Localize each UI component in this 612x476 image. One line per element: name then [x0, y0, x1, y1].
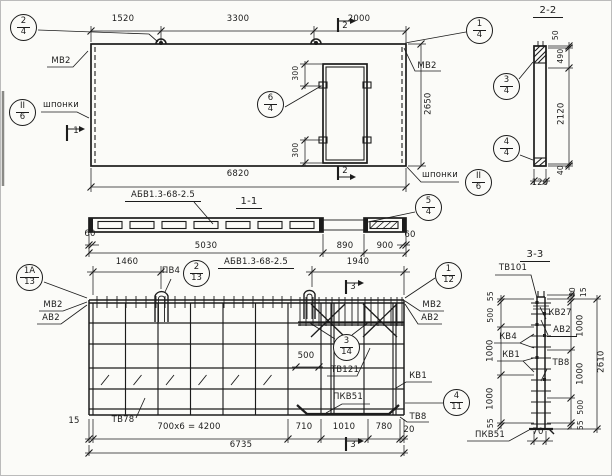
- callout-4-11: 4 11: [443, 389, 470, 416]
- callout-II-6-left: II 6: [9, 99, 36, 126]
- dim-5030: 5030: [184, 242, 228, 251]
- callout-bottom: 13: [187, 274, 206, 284]
- section-2-2-title: 2-2: [533, 5, 563, 18]
- dim-500-left: 500: [487, 305, 495, 325]
- dim-40-right: 40: [569, 282, 577, 302]
- dim-300-bottom: 300: [292, 138, 300, 162]
- label-kv27: КВ27: [544, 309, 576, 318]
- callout-bottom: 6: [472, 183, 485, 193]
- callout-bottom: 13: [20, 278, 39, 288]
- label-kv1-sec33: КВ1: [497, 351, 525, 360]
- section-mark-2-bottom: 2: [340, 167, 350, 176]
- sec11-strip-main: [89, 218, 323, 232]
- callout-2-13: 2 13: [183, 260, 210, 287]
- dim-40: 40: [557, 160, 565, 180]
- callout-bottom: 4: [422, 208, 435, 218]
- label-keys-right: шпонки: [420, 171, 460, 180]
- label-pkv51-sec33: ПКВ51: [467, 431, 513, 440]
- label-av2-reinf-right: АВ2: [416, 314, 444, 323]
- callout-3-14: 3 14: [333, 334, 360, 361]
- section-mark-3-top: 3: [348, 283, 358, 292]
- dim-60-left: 60: [81, 230, 99, 239]
- callout-bottom: 4: [500, 87, 513, 97]
- dim-300-top: 300: [292, 61, 300, 85]
- dim-50: 50: [552, 25, 560, 45]
- dim-500-right: 500: [577, 397, 585, 417]
- dim-15-reinf: 15: [65, 417, 83, 426]
- dim-490: 490: [557, 44, 565, 68]
- sec22-member: [534, 46, 546, 166]
- dim-20: 20: [399, 426, 419, 435]
- dim-1010: 1010: [323, 423, 365, 432]
- dim-55-top-left: 55: [487, 286, 495, 306]
- label-mv2-top-right: МВ2: [413, 62, 441, 71]
- label-av2-reinf-left: АВ2: [37, 314, 65, 323]
- callout-II-6-right: II 6: [465, 169, 492, 196]
- label-keys-left: шпонки: [41, 101, 81, 110]
- section-1-1-title: 1-1: [236, 196, 262, 209]
- dim-1460: 1460: [103, 258, 151, 267]
- callout-3-4: 3 4: [493, 73, 520, 100]
- section-3-3-title: 3-3: [520, 249, 550, 262]
- dim-55-bottom-right: 55: [577, 415, 585, 435]
- label-tv8-sec33: ТВ8: [546, 359, 576, 368]
- label-tv121: ТВ121: [325, 366, 365, 375]
- callout-5-4: 5 4: [415, 194, 442, 221]
- label-kv4: КВ4: [494, 333, 522, 342]
- dim-500-reinf: 500: [292, 352, 320, 361]
- callout-bottom: 12: [439, 276, 458, 286]
- label-mv2-reinf-left: МВ2: [39, 301, 67, 310]
- dim-1940: 1940: [334, 258, 382, 267]
- callout-bottom: 4: [473, 31, 486, 41]
- label-tv78: ТВ78: [107, 416, 139, 425]
- dim-15-right: 15: [580, 282, 588, 302]
- dim-120: 120: [525, 179, 555, 188]
- callout-bottom: 4: [264, 105, 277, 115]
- label-pkv51-reinf: ПКВ51: [326, 393, 370, 402]
- dim-6820: 6820: [216, 170, 260, 179]
- panel-outline: [91, 44, 406, 166]
- dim-6735: 6735: [217, 441, 265, 450]
- door-opening: [323, 64, 367, 163]
- drawing-sheet: 1520 3300 2000 2 МВ2 МВ2 шпонки 1 300 30…: [0, 0, 612, 476]
- dim-700x6: 700х6 = 4200: [141, 423, 237, 432]
- dim-2650: 2650: [424, 84, 433, 124]
- section-mark-2-top: 2: [340, 22, 350, 31]
- dim-1000-left-2: 1000: [486, 381, 495, 417]
- callout-1-12: 1 12: [435, 262, 462, 289]
- callout-1-4: 1 4: [466, 17, 493, 44]
- callout-2-4: 2 4: [10, 14, 37, 41]
- dim-900: 900: [371, 242, 399, 251]
- label-tv101: ТВ101: [493, 264, 533, 273]
- dim-70: 70: [525, 428, 551, 437]
- product-mark-reinf: АБВ1.3-68-2.5: [218, 258, 294, 269]
- dim-780: 780: [367, 423, 401, 432]
- label-tv8-reinf: ТВ8: [405, 413, 431, 422]
- label-pv4: ПВ4: [159, 267, 183, 276]
- callout-bottom: 4: [500, 149, 513, 159]
- section-mark-3-bottom: 3: [348, 441, 358, 450]
- callout-bottom: 11: [447, 403, 466, 413]
- callout-4-4: 4 4: [493, 135, 520, 162]
- dim-2610: 2610: [597, 342, 606, 382]
- callout-bottom: 6: [16, 113, 29, 123]
- callout-bottom: 14: [337, 348, 356, 358]
- dim-60-right: 60: [401, 231, 419, 240]
- dim-1000-right-2: 1000: [576, 356, 585, 392]
- dim-1000-right-1: 1000: [576, 308, 585, 344]
- label-mv2-reinf-right: МВ2: [418, 301, 446, 310]
- label-av2-sec33: АВ2: [547, 326, 577, 337]
- dim-1520: 1520: [101, 15, 145, 24]
- callout-6-4: 6 4: [257, 91, 284, 118]
- label-mv2-top-left: МВ2: [47, 57, 75, 66]
- dim-3300: 3300: [216, 15, 260, 24]
- label-kv1-reinf: КВ1: [404, 372, 432, 381]
- dim-890: 890: [331, 242, 359, 251]
- callout-1a-13: 1А 13: [16, 264, 43, 291]
- product-mark-1-1: АБВ1.3-68-2.5: [125, 191, 201, 202]
- callout-bottom: 4: [17, 28, 30, 38]
- dim-2120: 2120: [557, 96, 566, 132]
- dim-710: 710: [287, 423, 321, 432]
- section-mark-1: 1: [71, 127, 81, 136]
